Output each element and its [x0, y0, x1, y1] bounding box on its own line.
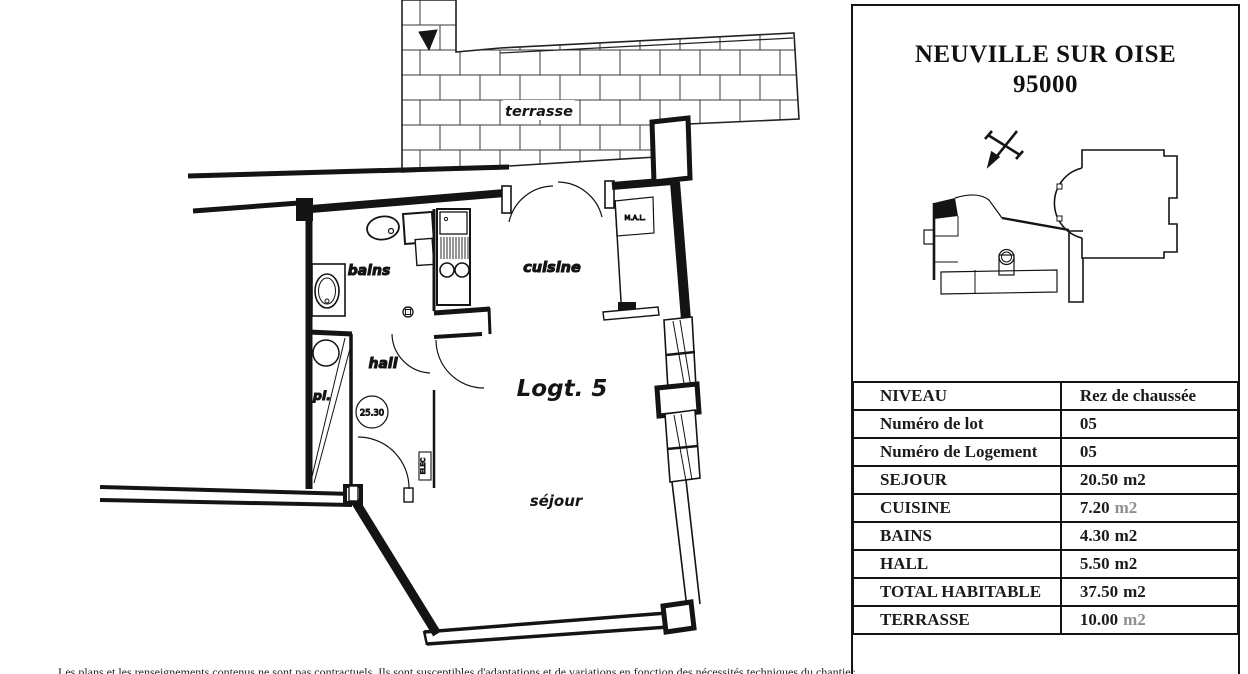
- label-bains: bains: [348, 263, 391, 279]
- row-label: TOTAL HABITABLE: [853, 578, 1061, 606]
- hob-burner-icon: [455, 263, 469, 277]
- hob-burner-icon: [440, 263, 454, 277]
- row-value: 37.50m2: [1061, 578, 1238, 606]
- table-row: Numéro de lot 05: [853, 410, 1238, 438]
- table-row: BAINS 4.30m2: [853, 522, 1238, 550]
- label-mal: M.A.L.: [624, 214, 645, 222]
- row-value: 7.20m2: [1061, 494, 1238, 522]
- row-label: CUISINE: [853, 494, 1061, 522]
- spec-table: NIVEAU Rez de chaussée Numéro de lot 05 …: [852, 381, 1239, 635]
- row-value: 05: [1061, 410, 1238, 438]
- row-value: 10.00m2: [1061, 606, 1238, 634]
- row-label: Numéro de lot: [853, 410, 1061, 438]
- row-label: SEJOUR: [853, 466, 1061, 494]
- label-surface: 25.30: [360, 409, 384, 419]
- page: terrasse: [0, 0, 1248, 674]
- water-heater-icon: [313, 340, 339, 366]
- unit-location-marker: [934, 198, 958, 219]
- french-door: [509, 182, 602, 222]
- row-label: TERRASSE: [853, 606, 1061, 634]
- table-row: TOTAL HABITABLE 37.50m2: [853, 578, 1238, 606]
- terrace-area: terrasse: [402, 0, 799, 172]
- row-value: 05: [1061, 438, 1238, 466]
- label-cuisine: cuisine: [523, 260, 581, 276]
- drain-icon: [403, 307, 413, 317]
- info-panel: NEUVILLE SUR OISE 95000: [851, 4, 1240, 674]
- table-row: TERRASSE 10.00m2: [853, 606, 1238, 634]
- table-row: NIVEAU Rez de chaussée: [853, 382, 1238, 410]
- table-row: Numéro de Logement 05: [853, 438, 1238, 466]
- label-logt: Logt. 5: [517, 376, 608, 402]
- laundry-closet: M.A.L.: [603, 197, 659, 320]
- row-value: 20.50m2: [1061, 466, 1238, 494]
- exterior-walls: [100, 118, 700, 645]
- city-name: NEUVILLE SUR OISE: [853, 40, 1238, 70]
- label-elec: ELEC: [419, 457, 427, 474]
- row-value: 5.50m2: [1061, 550, 1238, 578]
- floor-plan: terrasse: [0, 0, 840, 674]
- window-strip: [657, 317, 700, 482]
- page-title: NEUVILLE SUR OISE 95000: [853, 40, 1238, 100]
- table-row: SEJOUR 20.50m2: [853, 466, 1238, 494]
- toilet-icon: [366, 214, 401, 241]
- postal-code: 95000: [853, 70, 1238, 100]
- sink-icon: [440, 212, 467, 234]
- label-terrasse: terrasse: [505, 104, 573, 120]
- hall-area: ELEC 25.30 hall pl.: [311, 338, 484, 502]
- bathroom: bains: [309, 212, 434, 488]
- kitchen-unit: cuisine: [434, 209, 581, 337]
- table-row: CUISINE 7.20m2: [853, 494, 1238, 522]
- label-pl: pl.: [312, 388, 331, 403]
- site-plan: [917, 140, 1189, 308]
- row-label: HALL: [853, 550, 1061, 578]
- table-row: HALL 5.50m2: [853, 550, 1238, 578]
- row-value: 4.30m2: [1061, 522, 1238, 550]
- label-sejour: séjour: [530, 492, 584, 510]
- disclaimer-text: Les plans et les renseignements contenus…: [58, 665, 798, 674]
- row-value: Rez de chaussée: [1061, 382, 1238, 410]
- row-label: Numéro de Logement: [853, 438, 1061, 466]
- row-label: NIVEAU: [853, 382, 1061, 410]
- label-hall: hall: [368, 356, 397, 372]
- row-label: BAINS: [853, 522, 1061, 550]
